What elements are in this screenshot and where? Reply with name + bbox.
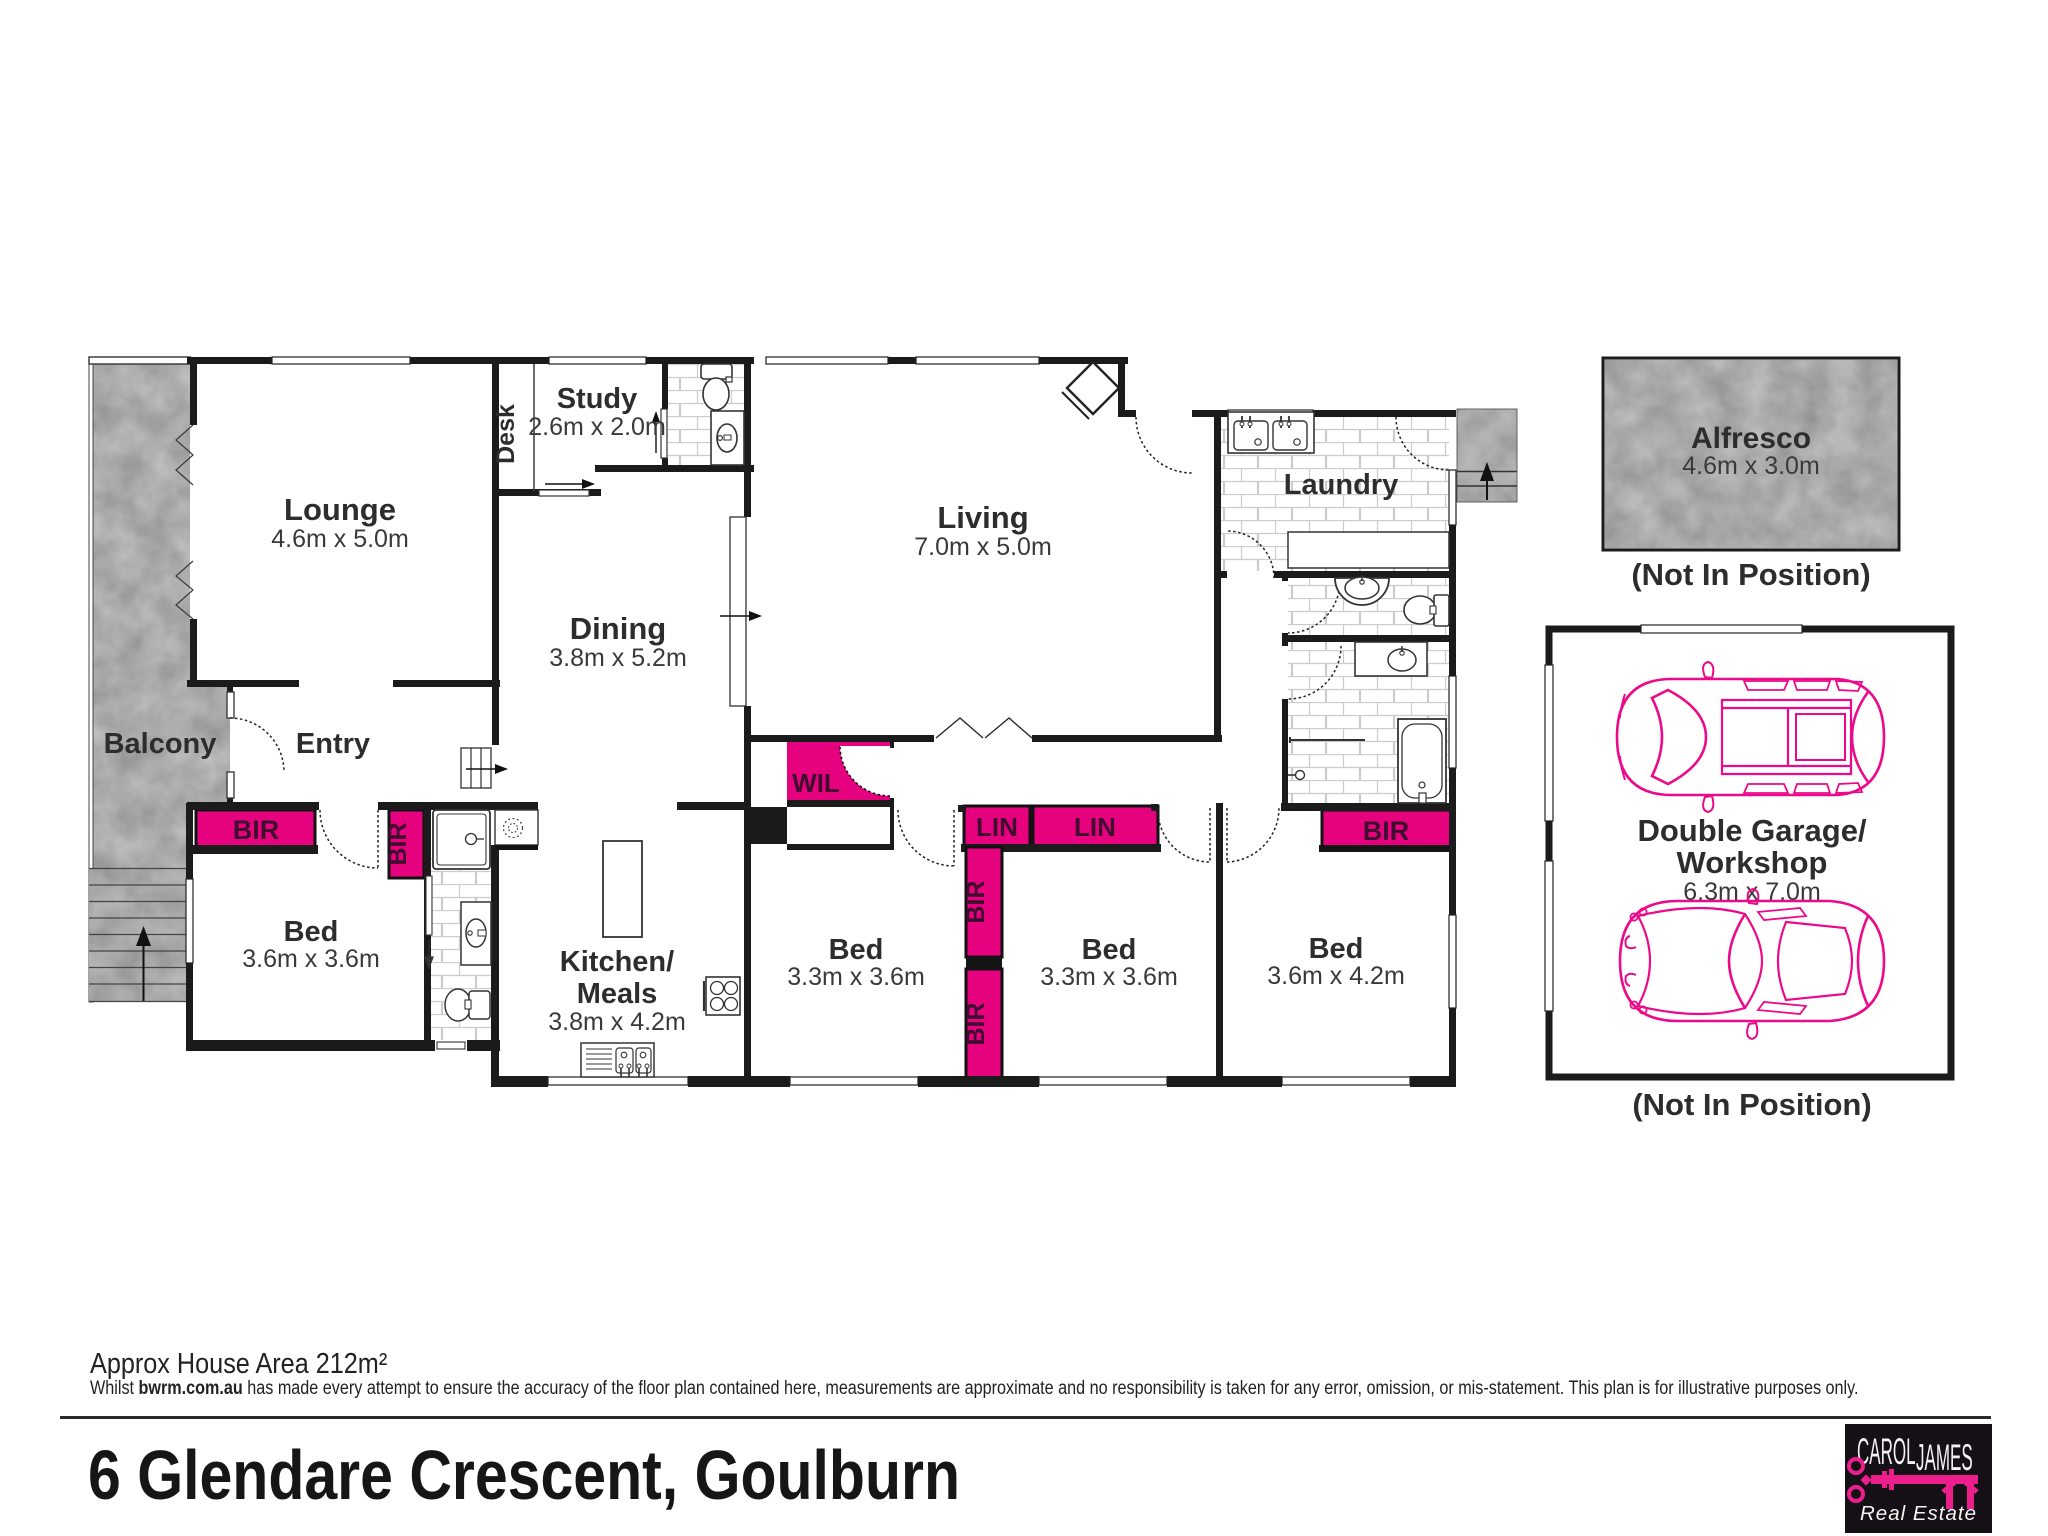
svg-text:BIR: BIR <box>962 1002 990 1045</box>
svg-text:Kitchen/: Kitchen/ <box>560 946 674 978</box>
svg-text:Approx House Area 212m²: Approx House Area 212m² <box>90 1346 387 1379</box>
svg-text:BIR: BIR <box>962 880 990 923</box>
svg-text:BIR: BIR <box>384 822 412 865</box>
svg-text:WIL: WIL <box>792 768 840 798</box>
svg-text:3.3m x 3.6m: 3.3m x 3.6m <box>1040 963 1178 991</box>
svg-text:Workshop: Workshop <box>1677 845 1828 880</box>
svg-text:Entry: Entry <box>296 728 370 760</box>
svg-text:Alfresco: Alfresco <box>1691 422 1811 455</box>
svg-text:Whilst bwrm.com.au has made ev: Whilst bwrm.com.au has made every attemp… <box>90 1377 1858 1399</box>
svg-text:Dining: Dining <box>570 611 666 646</box>
svg-text:(Not In Position): (Not In Position) <box>1631 557 1870 592</box>
svg-text:JAMES: JAMES <box>1916 1438 1973 1479</box>
svg-text:Living: Living <box>937 500 1028 535</box>
svg-text:LIN: LIN <box>976 812 1018 842</box>
svg-text:4.6m x 5.0m: 4.6m x 5.0m <box>271 525 409 553</box>
svg-text:2.6m x 2.0m: 2.6m x 2.0m <box>528 413 666 441</box>
svg-text:Double Garage/: Double Garage/ <box>1637 813 1866 848</box>
svg-text:Lounge: Lounge <box>284 492 396 527</box>
svg-text:Balcony: Balcony <box>104 728 217 760</box>
svg-text:6 Glendare Crescent, Goulburn: 6 Glendare Crescent, Goulburn <box>88 1435 960 1514</box>
svg-text:3.6m x 3.6m: 3.6m x 3.6m <box>242 945 380 973</box>
svg-text:3.3m x 3.6m: 3.3m x 3.6m <box>787 963 925 991</box>
svg-text:3.8m x 4.2m: 3.8m x 4.2m <box>548 1008 686 1036</box>
svg-text:4.6m x 3.0m: 4.6m x 3.0m <box>1682 452 1820 480</box>
svg-text:Real Estate: Real Estate <box>1860 1502 1977 1525</box>
svg-text:BIR: BIR <box>233 815 280 845</box>
svg-text:Bed: Bed <box>284 916 339 948</box>
svg-text:7.0m x 5.0m: 7.0m x 5.0m <box>914 533 1052 561</box>
svg-text:Bed: Bed <box>829 934 884 966</box>
svg-text:Bed: Bed <box>1309 933 1364 965</box>
svg-text:(Not In Position): (Not In Position) <box>1632 1087 1871 1122</box>
svg-text:Meals: Meals <box>577 978 658 1010</box>
svg-text:CAROL: CAROL <box>1857 1432 1916 1473</box>
svg-text:Bed: Bed <box>1082 934 1137 966</box>
svg-text:Desk: Desk <box>492 404 520 464</box>
svg-text:3.8m x 5.2m: 3.8m x 5.2m <box>549 644 687 672</box>
svg-text:Study: Study <box>557 383 638 415</box>
svg-text:LIN: LIN <box>1074 812 1116 842</box>
svg-text:BIR: BIR <box>1363 816 1410 846</box>
svg-text:3.6m x 4.2m: 3.6m x 4.2m <box>1267 962 1405 990</box>
svg-text:Laundry: Laundry <box>1284 469 1398 501</box>
